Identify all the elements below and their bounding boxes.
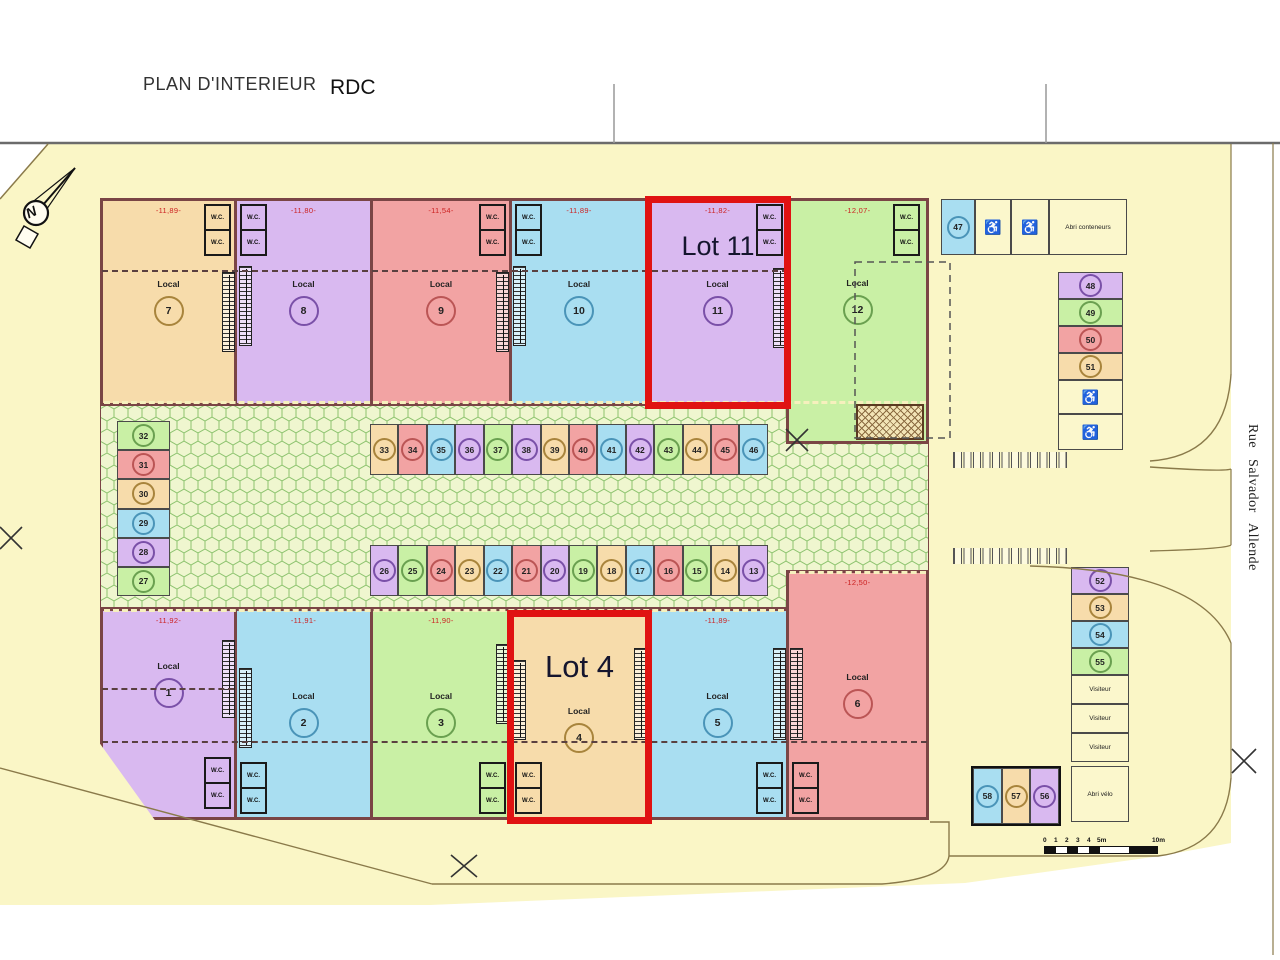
parking-spot-57: 57 [1002,768,1031,824]
highlight-lot-4[interactable]: Lot 4 [507,610,652,824]
parking-spot-number: 35 [430,438,453,461]
parking-spot-41: 41 [597,424,625,475]
parking-spot-number: 40 [572,438,595,461]
wc-block: W.C. W.C. [515,204,542,256]
stairs [222,272,235,352]
parking-spot-number: 58 [976,785,999,808]
handicap-parking-spot: ♿ [1011,199,1049,255]
scale-tick: 0 [1043,837,1047,844]
wc-block: W.C. W.C. [479,762,506,814]
scale-tick: 4 [1087,837,1091,844]
parking-spot-number: 51 [1079,355,1102,378]
floor-label: RDC [330,76,376,100]
parking-spot-number: 36 [458,438,481,461]
parking-spot-number: 28 [132,541,155,564]
wc-box: W.C. [204,229,231,256]
stairs [239,266,252,346]
parking-spot-22: 22 [484,545,512,596]
parking-spot-31: 31 [117,450,170,479]
wc-box: W.C. [792,762,819,789]
parking-spot-number: 52 [1089,569,1112,592]
parking-spot-51: 51 [1058,353,1123,380]
lot-4-label: Lot 4 [514,649,645,685]
scale-tick: 10m [1152,837,1165,844]
parking-spot-50: 50 [1058,326,1123,353]
parking-spot-number: 14 [714,559,737,582]
door-openings-line [790,571,926,574]
wc-box: W.C. [204,757,231,784]
wc-block: W.C. W.C. [792,762,819,814]
parking-spot-17: 17 [626,545,654,596]
parking-spot-48: 48 [1058,272,1123,299]
wc-box: W.C. [240,204,267,231]
parking-spot-58: 58 [973,768,1002,824]
crosswalk-strip [953,548,1067,564]
parking-spot-14: 14 [711,545,739,596]
page-title: PLAN D'INTERIEUR [143,74,316,95]
parking-spot-number: 43 [657,438,680,461]
local-label: Local [846,278,868,288]
wc-block: W.C. W.C. [893,204,920,256]
parking-spot-number: 39 [543,438,566,461]
parking-spot-21: 21 [512,545,540,596]
wc-block: W.C. W.C. [756,762,783,814]
visitor-parking-spot: Visiteur [1071,675,1129,704]
abri-velo-area: Abri vélo [1071,766,1129,822]
visitor-label: Visiteur [1089,715,1111,722]
parking-spot-38: 38 [512,424,540,475]
wc-box: W.C. [479,762,506,789]
parking-spot-15: 15 [683,545,711,596]
parking-spot-number: 13 [742,559,765,582]
parking-spot-24: 24 [427,545,455,596]
local-number: 3 [426,708,456,738]
wheelchair-icon: ♿ [1082,390,1099,404]
parking-spot-18: 18 [597,545,625,596]
wc-block: W.C. W.C. [240,762,267,814]
stairs [496,272,509,352]
parking-spot-number: 53 [1089,596,1112,619]
parking-spot-number: 31 [132,453,155,476]
scale-bar-segments [1044,846,1158,854]
local-3: -11,90- Local 3 W.C. W.C. [370,608,512,820]
local-10: -11,89- Local 10 W.C. W.C. [509,198,649,406]
parking-spot-25: 25 [398,545,426,596]
parking-spot-number: 37 [486,438,509,461]
parking-spot-13: 13 [739,545,767,596]
local-label: Local [292,691,314,701]
stairs [513,266,526,346]
parking-spot-number: 18 [600,559,623,582]
parking-stack-b: 52 53 54 55 Visiteur Visiteur Visiteur [1071,567,1129,762]
parking-spot-number: 38 [515,438,538,461]
visitor-parking-spot: Visiteur [1071,733,1129,762]
door-openings-line [104,609,784,612]
parking-spot-number: 42 [629,438,652,461]
handicap-parking-spot: ♿ [1058,414,1123,450]
parking-spot-number: 57 [1005,785,1028,808]
wc-box: W.C. [893,229,920,256]
wc-box: W.C. [515,229,542,256]
door-openings-line [104,401,926,404]
local-label: Local [568,279,590,289]
local-2: -11,91- Local 2 W.C. W.C. [234,608,373,820]
stairs [239,668,252,748]
parking-spot-56: 56 [1030,768,1059,824]
wc-box: W.C. [479,229,506,256]
scale-tick: 1 [1054,837,1058,844]
parking-spot-number: 20 [543,559,566,582]
parking-spot-47: 47 [941,199,975,255]
scale-tick: 2 [1065,837,1069,844]
wc-block: W.C. W.C. [479,204,506,256]
parking-spot-54: 54 [1071,621,1129,648]
parking-spot-35: 35 [427,424,455,475]
parking-spot-33: 33 [370,424,398,475]
parking-spot-53: 53 [1071,594,1129,621]
parking-spot-32: 32 [117,421,170,450]
visitor-label: Visiteur [1089,686,1111,693]
parking-spot-number: 25 [401,559,424,582]
wc-box: W.C. [204,204,231,231]
abri-velo-label: Abri vélo [1087,791,1112,798]
parking-spot-number: 33 [373,438,396,461]
parking-stack-a: 48 49 50 51 ♿ ♿ [1058,272,1123,450]
wc-box: W.C. [479,787,506,814]
local-number: 2 [289,708,319,738]
parking-spot-29: 29 [117,509,170,538]
parking-spot-46: 46 [739,424,767,475]
parking-spot-52: 52 [1071,567,1129,594]
local-6: -12,50- Local 6 W.C. W.C. [786,570,929,820]
local-label: Local [430,279,452,289]
parking-spot-number: 56 [1033,785,1056,808]
visitor-parking-spot: Visiteur [1071,704,1129,733]
parking-spot-number: 27 [132,570,155,593]
wc-box: W.C. [515,204,542,231]
stairs [222,640,235,718]
local-number: 12 [843,295,873,325]
parking-spot-number: 32 [132,424,155,447]
parking-spot-26: 26 [370,545,398,596]
local-number: 5 [703,708,733,738]
parking-spot-19: 19 [569,545,597,596]
local-number: 1 [154,678,184,708]
parking-spot-44: 44 [683,424,711,475]
scale-bar: 0 1 2 3 4 5m 10m [1040,837,1172,857]
stairs [790,648,803,740]
parking-spot-37: 37 [484,424,512,475]
parking-spot-number: 17 [629,559,652,582]
wc-box: W.C. [240,762,267,789]
local-label: Local [157,279,179,289]
wc-box: W.C. [893,204,920,231]
wc-box: W.C. [792,787,819,814]
parking-spot-number: 15 [685,559,708,582]
parking-spot-number: 16 [657,559,680,582]
parking-spot-23: 23 [455,545,483,596]
parking-spot-40: 40 [569,424,597,475]
parking-spot-34: 34 [398,424,426,475]
local-9: -11,54- Local 9 W.C. W.C. [370,198,512,406]
wc-block: W.C. W.C. [204,757,231,809]
local-number: 7 [154,296,184,326]
wc-block: W.C. W.C. [240,204,267,256]
parking-spot-number: 23 [458,559,481,582]
parking-spot-39: 39 [541,424,569,475]
parking-spot-number: 41 [600,438,623,461]
wc-box: W.C. [240,787,267,814]
parking-row-top: 33 34 35 36 37 38 39 40 41 42 43 44 45 4… [370,424,768,475]
local-label: Local [292,279,314,289]
parking-spot-number: 30 [132,482,155,505]
local-5: -11,89- Local 5 W.C. W.C. [646,608,789,820]
parking-spot-number: 50 [1079,328,1102,351]
visitor-label: Visiteur [1089,744,1111,751]
parking-spot-number: 21 [515,559,538,582]
local-number: 8 [289,296,319,326]
parking-spot-number: 24 [430,559,453,582]
wc-box: W.C. [204,782,231,809]
handicap-parking-spot: ♿ [975,199,1011,255]
local-label: Local [430,691,452,701]
hatched-utility-area [856,404,924,440]
wc-box: W.C. [756,762,783,789]
parking-column-left: 32 31 30 29 28 27 [117,421,170,596]
parking-spot-number: 54 [1089,623,1112,646]
local-7: -11,89- Local 7 W.C. W.C. [100,198,237,406]
floor-plan-canvas: PLAN D'INTERIEUR RDC -11,89- Local 7 W.C… [0,0,1280,960]
parking-trio: 58 57 56 [971,766,1061,826]
crosswalk-strip [953,452,1067,468]
local-label: Local [157,661,179,671]
parking-spot-number: 19 [572,559,595,582]
parking-spot-43: 43 [654,424,682,475]
wheelchair-icon: ♿ [1021,220,1038,234]
local-number: 6 [843,689,873,719]
scale-tick: 3 [1076,837,1080,844]
parking-spot-16: 16 [654,545,682,596]
street-name-label: Rue Salvador Allende [1244,424,1260,571]
wc-box: W.C. [479,204,506,231]
local-label: Local [706,691,728,701]
abri-conteneurs-label: Abri conteneurs [1065,224,1111,231]
parking-spot-28: 28 [117,538,170,567]
parking-spot-number: 46 [742,438,765,461]
parking-spot-30: 30 [117,479,170,508]
parking-spot-number: 29 [132,512,155,535]
wc-box: W.C. [756,787,783,814]
local-number: 10 [564,296,594,326]
parking-row-bottom: 26 25 24 23 22 21 20 19 18 17 16 15 14 1… [370,545,768,596]
parking-spot-number: 44 [685,438,708,461]
parking-spot-number: 49 [1079,301,1102,324]
stairs [773,648,786,740]
parking-spot-36: 36 [455,424,483,475]
wc-block: W.C. W.C. [204,204,231,256]
local-label: Local [846,672,868,682]
parking-spot-49: 49 [1058,299,1123,326]
parking-row-47: 47 ♿ ♿ Abri conteneurs [941,199,1127,255]
local-8: -11,80- Local 8 W.C. W.C. [234,198,373,406]
mezzanine-dash-line [102,688,234,690]
wc-box: W.C. [240,229,267,256]
highlight-lot-11[interactable]: Lot 11 [645,196,791,409]
parking-spot-20: 20 [541,545,569,596]
parking-spot-42: 42 [626,424,654,475]
parking-spot-number: 34 [401,438,424,461]
parking-spot-number: 22 [486,559,509,582]
parking-spot-45: 45 [711,424,739,475]
parking-spot-number: 55 [1089,650,1112,673]
handicap-parking-spot: ♿ [1058,380,1123,414]
wheelchair-icon: ♿ [984,220,1001,234]
lot-11-label: Lot 11 [652,231,784,262]
parking-spot-number: 47 [947,216,970,239]
parking-spot-number: 26 [373,559,396,582]
parking-spot-number: 45 [714,438,737,461]
abri-conteneurs-area: Abri conteneurs [1049,199,1127,255]
local-number: 9 [426,296,456,326]
parking-spot-27: 27 [117,567,170,596]
parking-spot-number: 48 [1079,274,1102,297]
wheelchair-icon: ♿ [1082,425,1099,439]
scale-tick: 5m [1097,837,1106,844]
parking-spot-55: 55 [1071,648,1129,675]
